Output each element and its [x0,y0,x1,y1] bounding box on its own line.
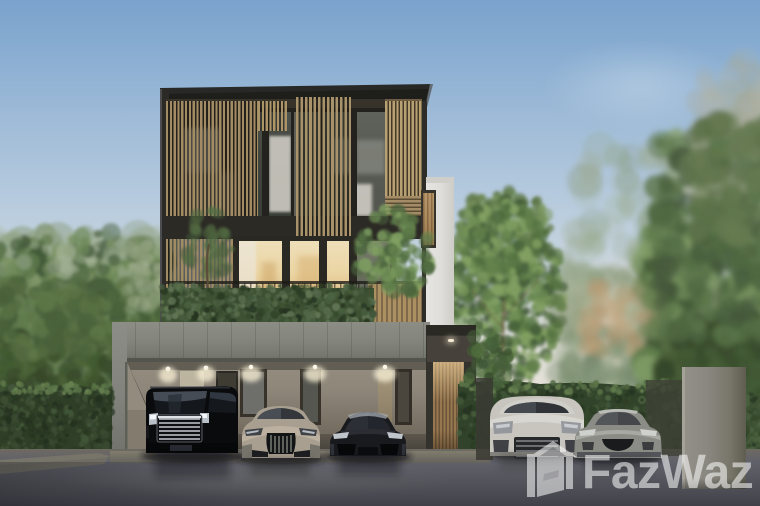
svg-text:FazWaz: FazWaz [582,446,753,499]
